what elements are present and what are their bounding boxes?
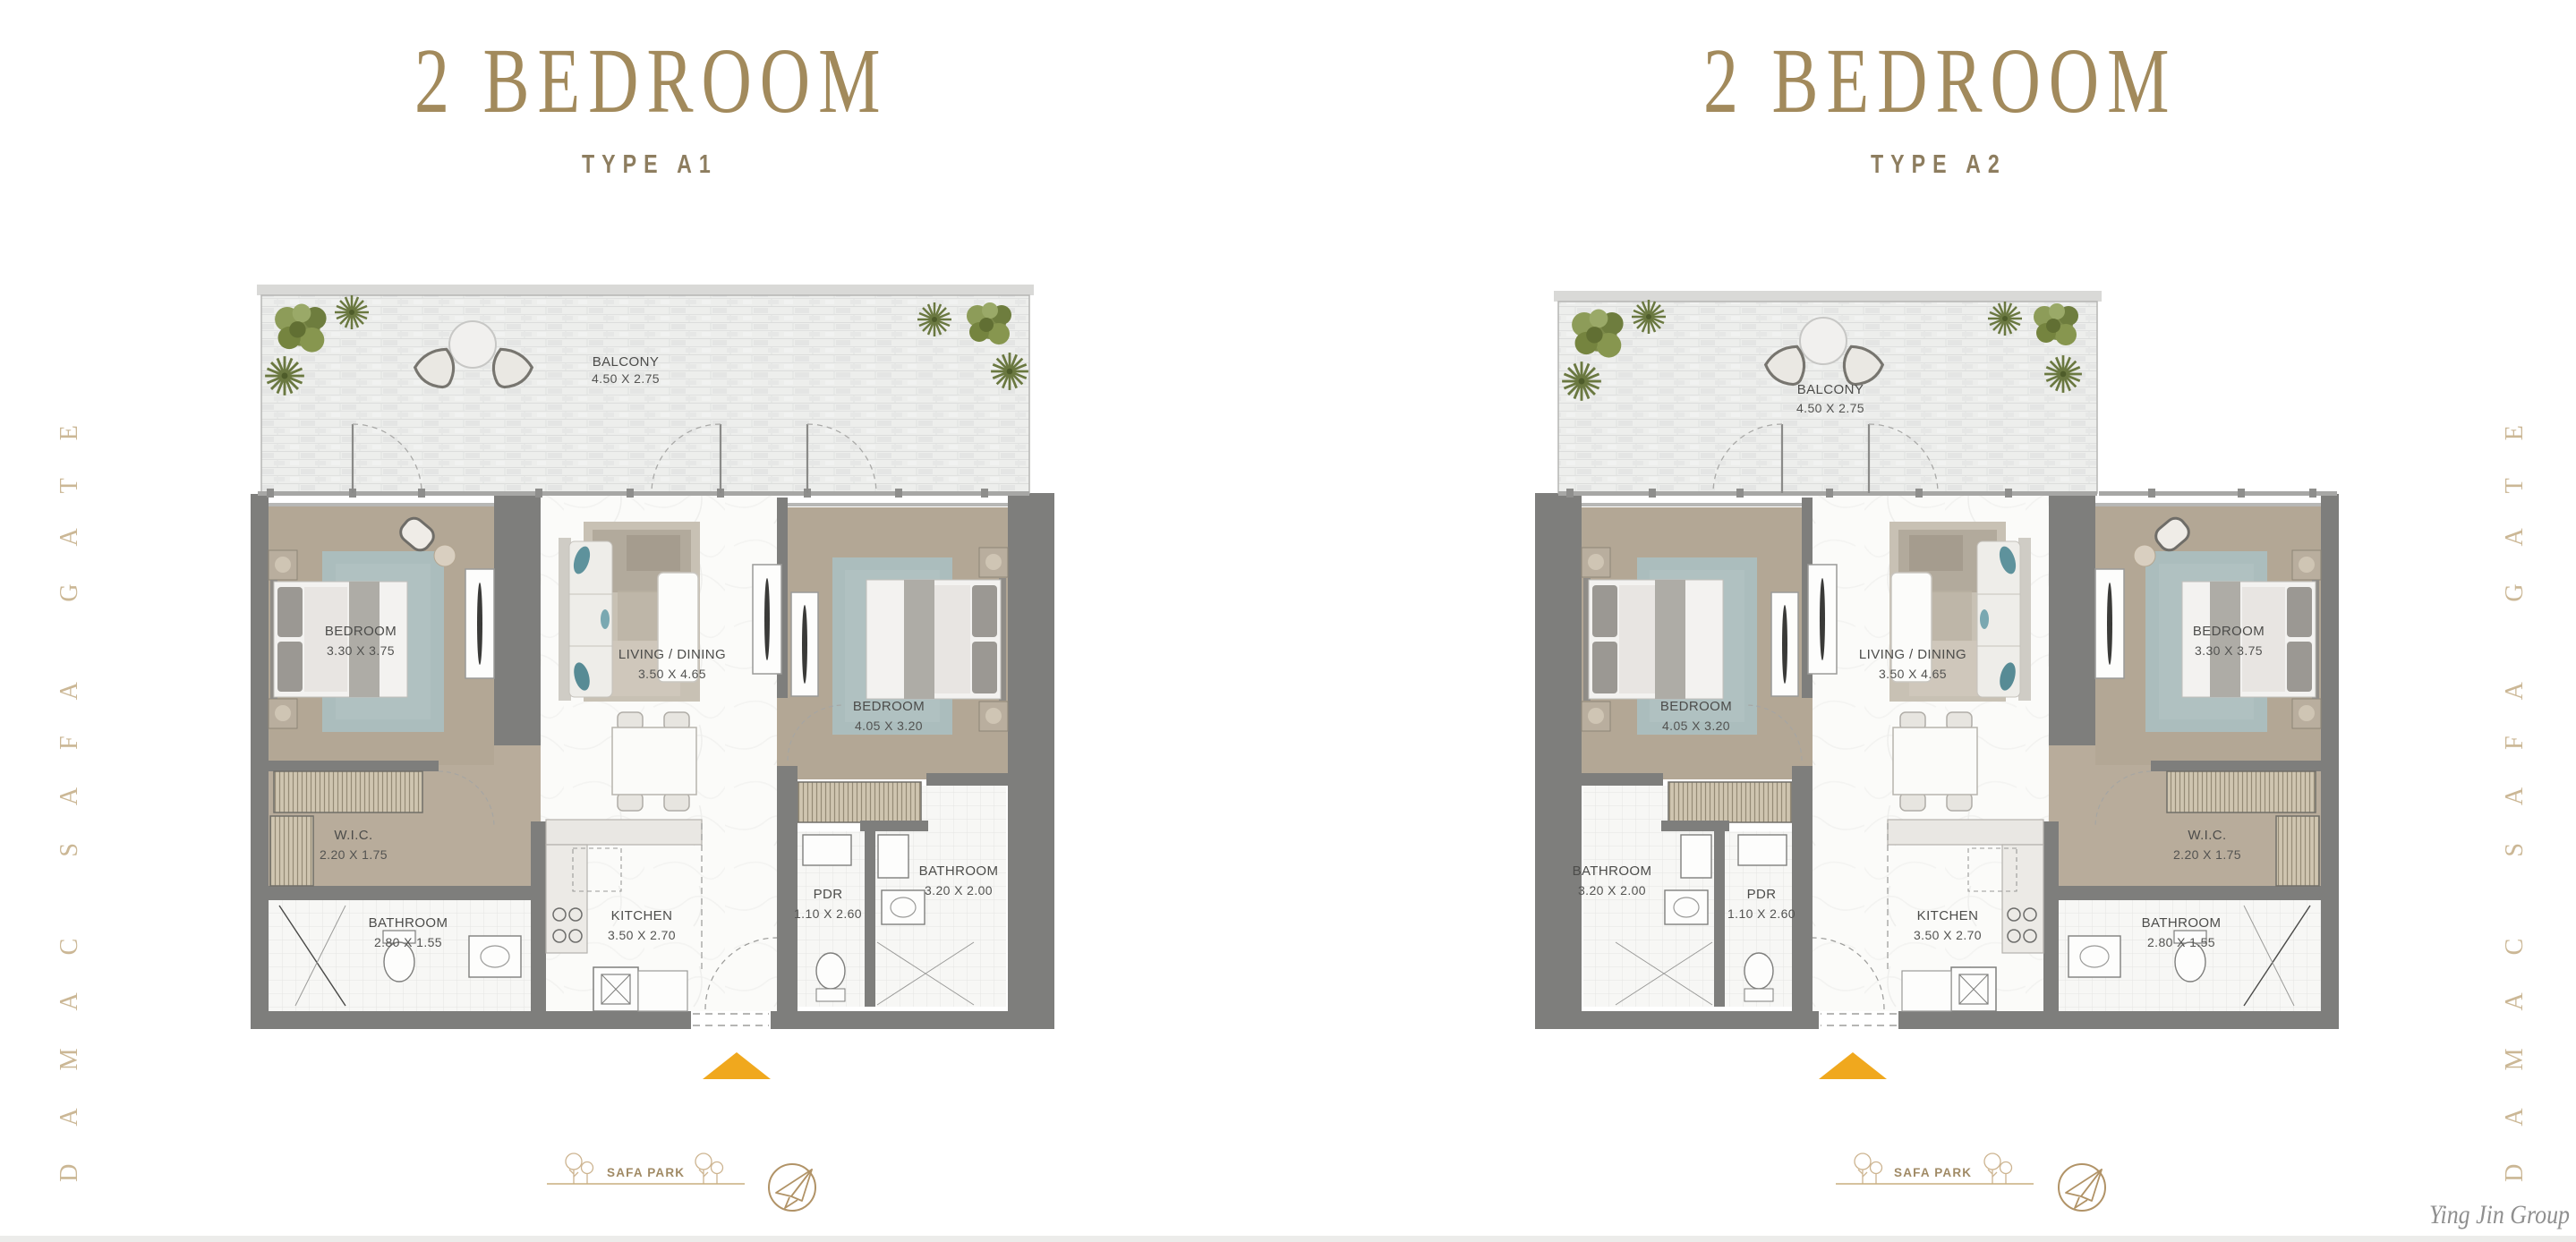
svg-text:KITCHEN: KITCHEN bbox=[1917, 908, 1979, 923]
svg-text:KITCHEN: KITCHEN bbox=[611, 908, 673, 923]
svg-text:BALCONY: BALCONY bbox=[1797, 382, 1864, 397]
svg-text:3.20 X 2.00: 3.20 X 2.00 bbox=[925, 883, 993, 897]
svg-text:BATHROOM: BATHROOM bbox=[919, 863, 999, 879]
svg-text:TYPE A2: TYPE A2 bbox=[1871, 149, 2007, 178]
svg-text:3.30 X 3.75: 3.30 X 3.75 bbox=[2195, 643, 2263, 658]
svg-text:SAFA PARK: SAFA PARK bbox=[607, 1166, 684, 1179]
svg-text:PDR: PDR bbox=[1747, 887, 1777, 902]
svg-text:Ying Jin Group: Ying Jin Group bbox=[2429, 1200, 2570, 1229]
svg-text:W.I.C.: W.I.C. bbox=[334, 828, 372, 843]
svg-text:2.80 X 1.55: 2.80 X 1.55 bbox=[374, 935, 442, 949]
svg-text:4.05 X 3.20: 4.05 X 3.20 bbox=[1662, 719, 1730, 733]
svg-text:2.20 X 1.75: 2.20 X 1.75 bbox=[2173, 847, 2241, 862]
svg-text:4.50 X 2.75: 4.50 X 2.75 bbox=[592, 371, 660, 386]
svg-text:1.10 X 2.60: 1.10 X 2.60 bbox=[1727, 906, 1796, 921]
svg-text:3.50 X 2.70: 3.50 X 2.70 bbox=[608, 928, 676, 942]
svg-text:BATHROOM: BATHROOM bbox=[2142, 915, 2222, 931]
svg-text:2 BEDROOM: 2 BEDROOM bbox=[414, 29, 888, 132]
svg-text:PDR: PDR bbox=[814, 887, 843, 902]
svg-text:3.50 X 4.65: 3.50 X 4.65 bbox=[1879, 667, 1947, 681]
svg-text:SAFA PARK: SAFA PARK bbox=[1894, 1166, 1971, 1179]
svg-text:3.20 X 2.00: 3.20 X 2.00 bbox=[1578, 883, 1646, 897]
svg-text:2.20 X 1.75: 2.20 X 1.75 bbox=[320, 847, 388, 862]
svg-text:4.50 X 2.75: 4.50 X 2.75 bbox=[1796, 401, 1864, 415]
svg-text:2.80 X 1.55: 2.80 X 1.55 bbox=[2147, 935, 2215, 949]
svg-text:3.50 X 4.65: 3.50 X 4.65 bbox=[638, 667, 706, 681]
svg-text:BEDROOM: BEDROOM bbox=[1660, 699, 1732, 714]
svg-text:LIVING / DINING: LIVING / DINING bbox=[618, 647, 726, 662]
svg-text:3.30 X 3.75: 3.30 X 3.75 bbox=[327, 643, 395, 658]
svg-text:DAMAC SAFA GATE: DAMAC SAFA GATE bbox=[2501, 387, 2529, 1182]
svg-text:BATHROOM: BATHROOM bbox=[1573, 863, 1652, 879]
svg-text:3.50 X 2.70: 3.50 X 2.70 bbox=[1914, 928, 1982, 942]
svg-text:BEDROOM: BEDROOM bbox=[325, 624, 397, 639]
svg-text:TYPE A1: TYPE A1 bbox=[582, 149, 718, 178]
svg-text:4.05 X 3.20: 4.05 X 3.20 bbox=[855, 719, 923, 733]
svg-text:BEDROOM: BEDROOM bbox=[2193, 624, 2265, 639]
svg-text:1.10 X 2.60: 1.10 X 2.60 bbox=[794, 906, 862, 921]
svg-text:BEDROOM: BEDROOM bbox=[853, 699, 925, 714]
svg-text:BALCONY: BALCONY bbox=[593, 354, 660, 370]
svg-text:DAMAC SAFA GATE: DAMAC SAFA GATE bbox=[55, 387, 83, 1182]
svg-text:2 BEDROOM: 2 BEDROOM bbox=[1703, 29, 2177, 132]
svg-text:LIVING / DINING: LIVING / DINING bbox=[1859, 647, 1966, 662]
svg-text:W.I.C.: W.I.C. bbox=[2188, 828, 2226, 843]
svg-text:BATHROOM: BATHROOM bbox=[369, 915, 448, 931]
